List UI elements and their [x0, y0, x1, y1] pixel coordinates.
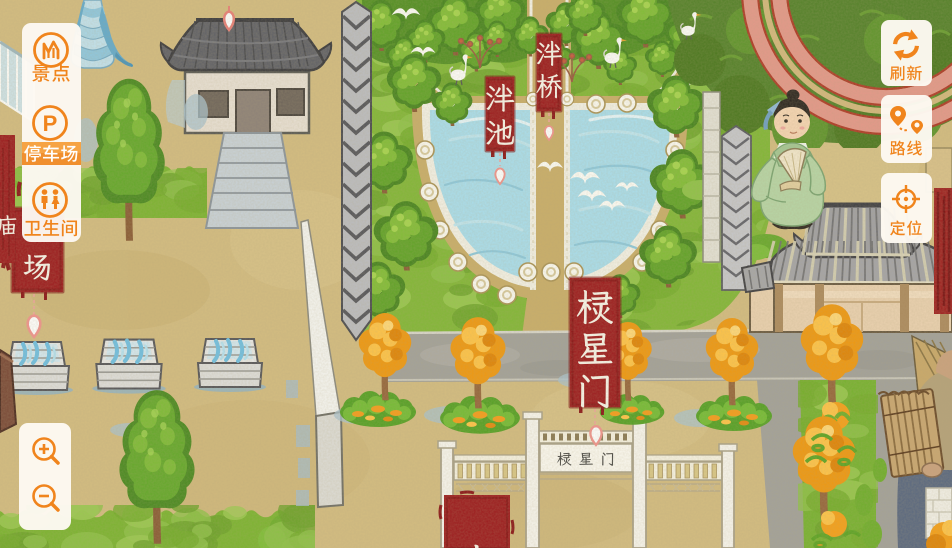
svg-text:P: P [43, 111, 58, 136]
